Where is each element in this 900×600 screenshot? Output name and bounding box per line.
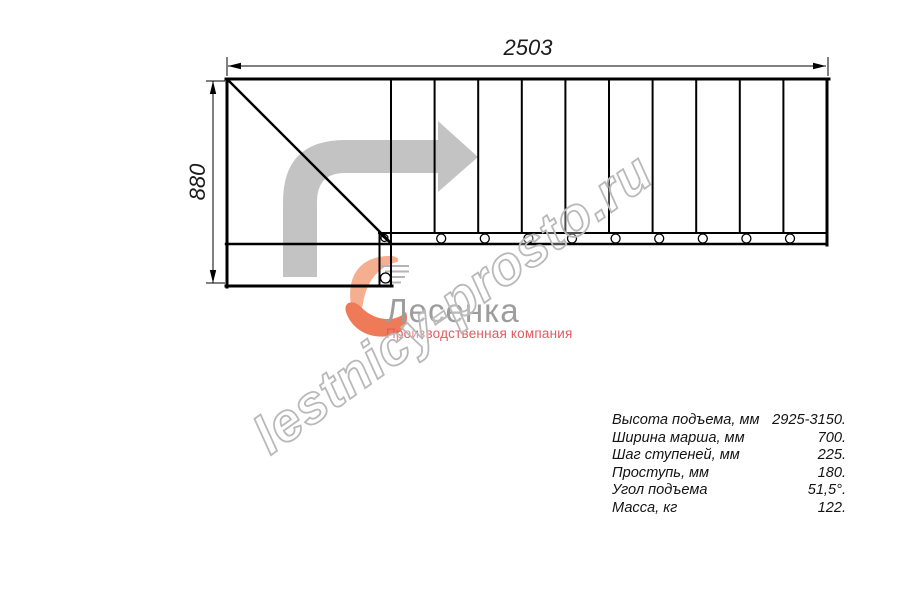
baluster-circles <box>437 234 795 243</box>
spec-label: Шаг ступеней, мм <box>612 447 740 465</box>
spec-value: 122. <box>818 500 846 518</box>
spec-label: Проступь, мм <box>612 465 709 483</box>
spec-label: Угол подъема <box>612 482 707 500</box>
spec-value: 180. <box>818 465 846 483</box>
spec-value: 51,5°. <box>808 482 846 500</box>
dim-height-label: 880 <box>185 159 211 205</box>
spec-table: Высота подъема, мм2925-3150.Ширина марша… <box>612 412 846 518</box>
spec-label: Высота подъема, мм <box>612 412 760 430</box>
spec-row: Масса, кг122. <box>612 500 846 518</box>
logo-name: Лесенка <box>386 292 586 330</box>
spec-row: Шаг ступеней, мм225. <box>612 447 846 465</box>
blueprint-canvas: 2503 880 Лесенка Производственная компан… <box>0 0 900 600</box>
spec-value: 2925-3150. <box>772 412 846 430</box>
spec-row: Угол подъема51,5°. <box>612 482 846 500</box>
spec-label: Ширина марша, мм <box>612 430 745 448</box>
dim-width-label: 2503 <box>487 35 569 61</box>
spec-label: Масса, кг <box>612 500 677 518</box>
logo-tagline: Производственная компания <box>386 326 606 341</box>
spec-row: Проступь, мм180. <box>612 465 846 483</box>
spec-row: Высота подъема, мм2925-3150. <box>612 412 846 430</box>
spec-row: Ширина марша, мм700. <box>612 430 846 448</box>
spec-value: 700. <box>818 430 846 448</box>
spec-value: 225. <box>818 447 846 465</box>
